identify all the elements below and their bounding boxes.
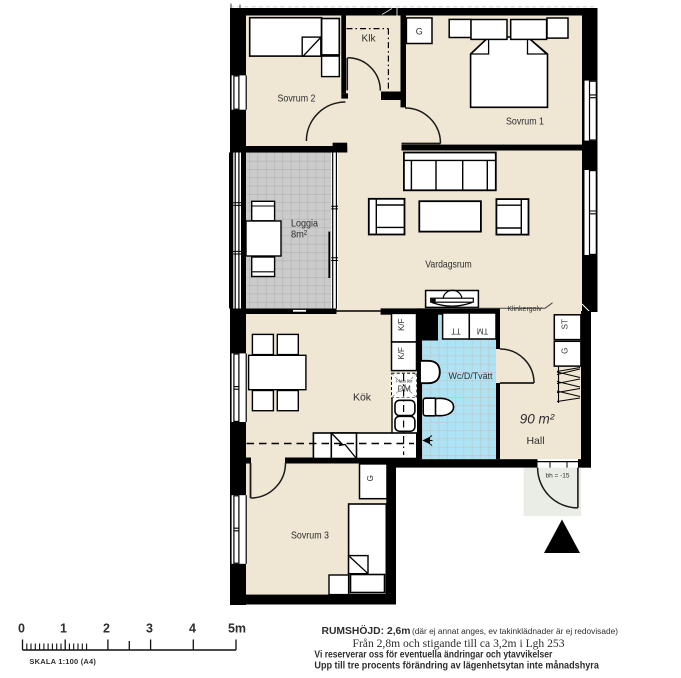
svg-text:Sovrum 3: Sovrum 3 — [291, 530, 329, 542]
svg-text:Vardagsrum: Vardagsrum — [425, 259, 472, 271]
svg-text:0: 0 — [18, 622, 25, 636]
svg-text:Klinkergolv: Klinkergolv — [507, 306, 542, 313]
svg-text:G: G — [366, 475, 375, 481]
svg-text:G: G — [416, 27, 423, 37]
svg-text:1: 1 — [60, 622, 67, 636]
svg-text:G: G — [561, 348, 570, 354]
svg-text:TT: TT — [451, 327, 461, 336]
svg-text:SKALA 1:100 (A4): SKALA 1:100 (A4) — [29, 657, 96, 666]
svg-text:bh = -15: bh = -15 — [545, 473, 569, 480]
svg-text:ST: ST — [561, 319, 570, 329]
svg-text:TM: TM — [476, 327, 488, 336]
svg-text:Upp till tre procents förändri: Upp till tre procents förändring av läge… — [314, 661, 599, 672]
svg-text:RUMSHÖJD: 2,6m: RUMSHÖJD: 2,6m — [322, 624, 411, 637]
svg-text:Sovrum 2: Sovrum 2 — [278, 93, 316, 105]
svg-text:2: 2 — [103, 622, 110, 636]
svg-text:3: 3 — [146, 622, 153, 636]
svg-text:DM: DM — [398, 384, 411, 394]
svg-text:90 m²: 90 m² — [520, 412, 555, 427]
svg-text:8m²: 8m² — [291, 229, 307, 241]
svg-text:4: 4 — [189, 622, 196, 636]
svg-text:K/F: K/F — [397, 318, 406, 331]
svg-text:Kök: Kök — [353, 392, 372, 404]
svg-text:K/F: K/F — [397, 347, 406, 360]
svg-text:Hall: Hall — [526, 435, 544, 447]
svg-text:5m: 5m — [228, 622, 246, 636]
svg-text:Vi reserverar oss för eventuel: Vi reserverar oss för eventuella ändring… — [314, 650, 552, 661]
svg-text:Wc/D/Tvätt: Wc/D/Tvätt — [449, 371, 493, 381]
svg-text:Klk: Klk — [362, 34, 377, 45]
svg-text:(där ej annat anges, ev takink: (där ej annat anges, ev takinklädnader ä… — [412, 627, 618, 636]
svg-text:Sovrum 1: Sovrum 1 — [506, 116, 544, 128]
svg-text:Från 2,8m och stigande till ca: Från 2,8m och stigande till ca 3,2m i Lg… — [353, 637, 565, 650]
